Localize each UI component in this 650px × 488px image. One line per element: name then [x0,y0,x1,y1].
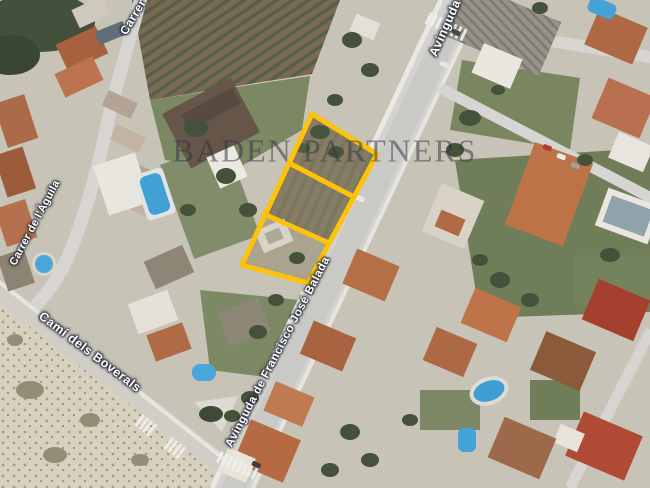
map-canvas [0,0,650,488]
satellite-map-image[interactable]: Carrer Carrer de l'Àguila Camí dels Bove… [0,0,650,488]
